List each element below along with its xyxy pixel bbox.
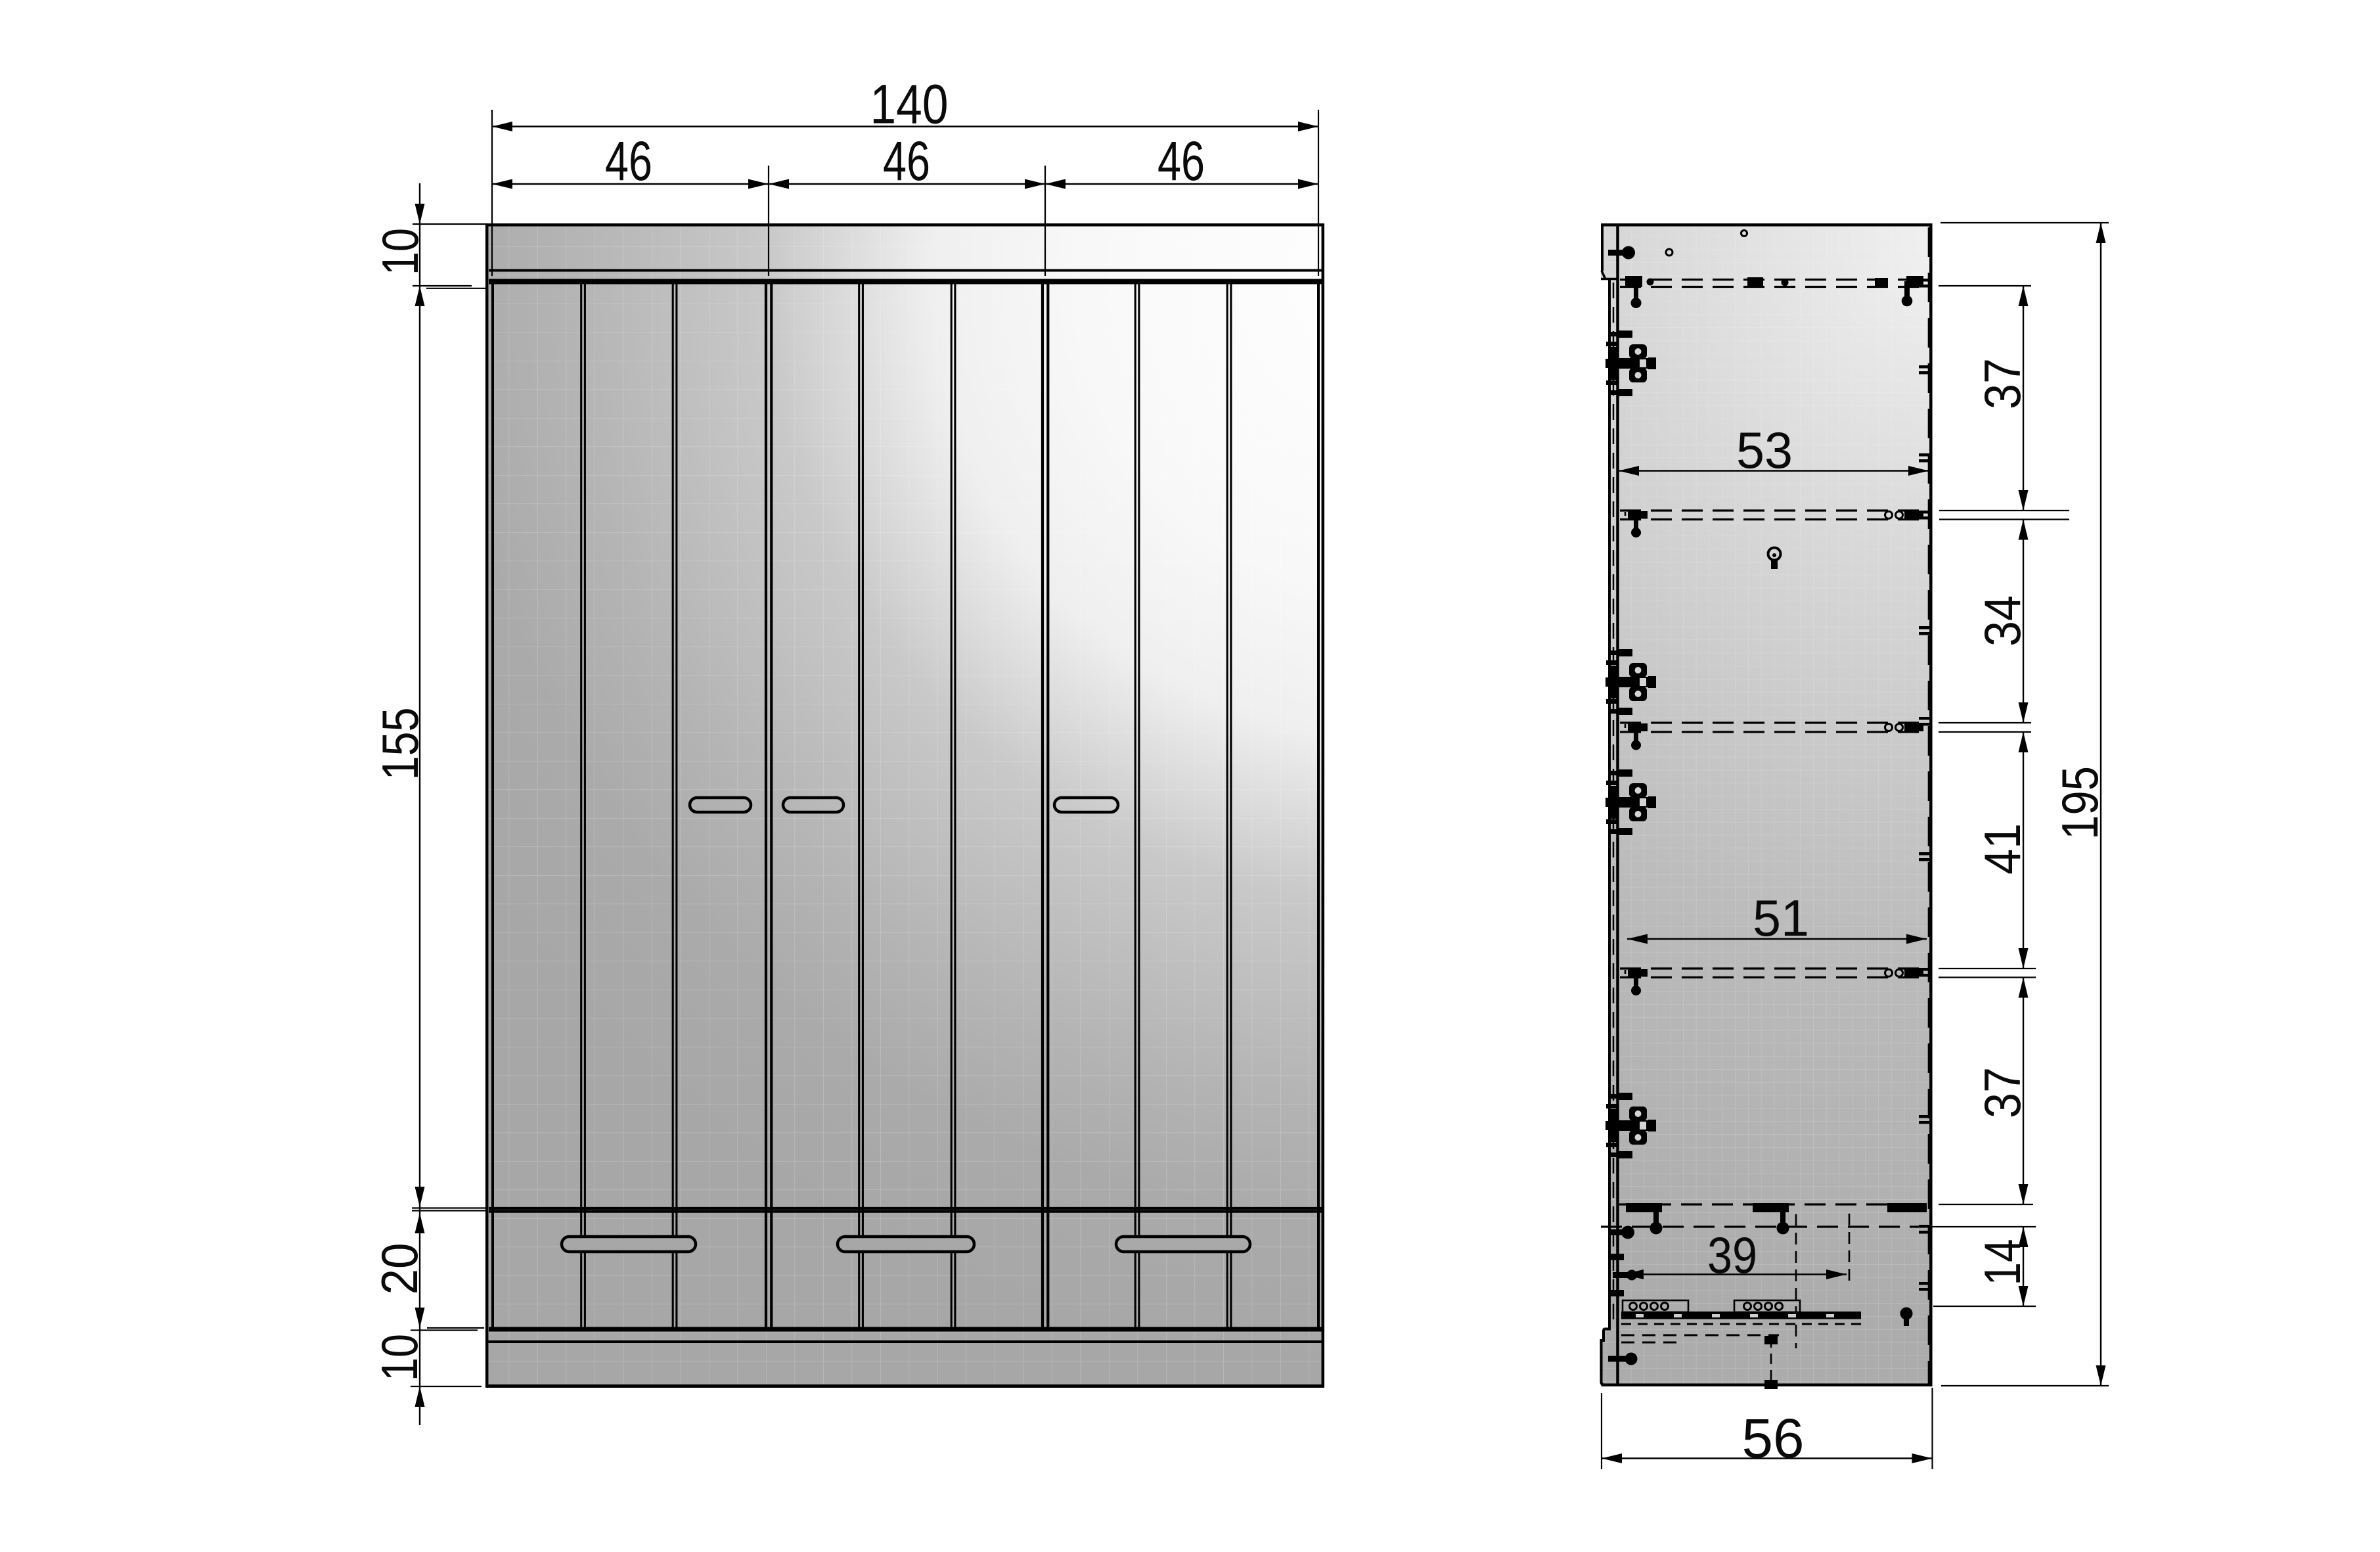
svg-text:46: 46 [883,130,930,192]
svg-text:14: 14 [1973,1239,2031,1286]
svg-text:46: 46 [1157,130,1205,192]
svg-text:20: 20 [370,1243,428,1295]
svg-text:51: 51 [1753,889,1809,947]
svg-text:155: 155 [371,708,429,781]
svg-text:39: 39 [1707,1226,1757,1284]
svg-text:10: 10 [370,1334,428,1381]
svg-text:34: 34 [1973,595,2031,647]
svg-text:46: 46 [605,130,652,192]
svg-text:37: 37 [1973,358,2031,409]
svg-text:53: 53 [1736,421,1793,479]
svg-text:10: 10 [371,228,429,275]
svg-text:41: 41 [1973,823,2031,875]
svg-text:37: 37 [1973,1067,2031,1118]
svg-text:195: 195 [2051,766,2109,840]
svg-text:56: 56 [1742,1407,1805,1469]
svg-text:140: 140 [870,74,949,135]
